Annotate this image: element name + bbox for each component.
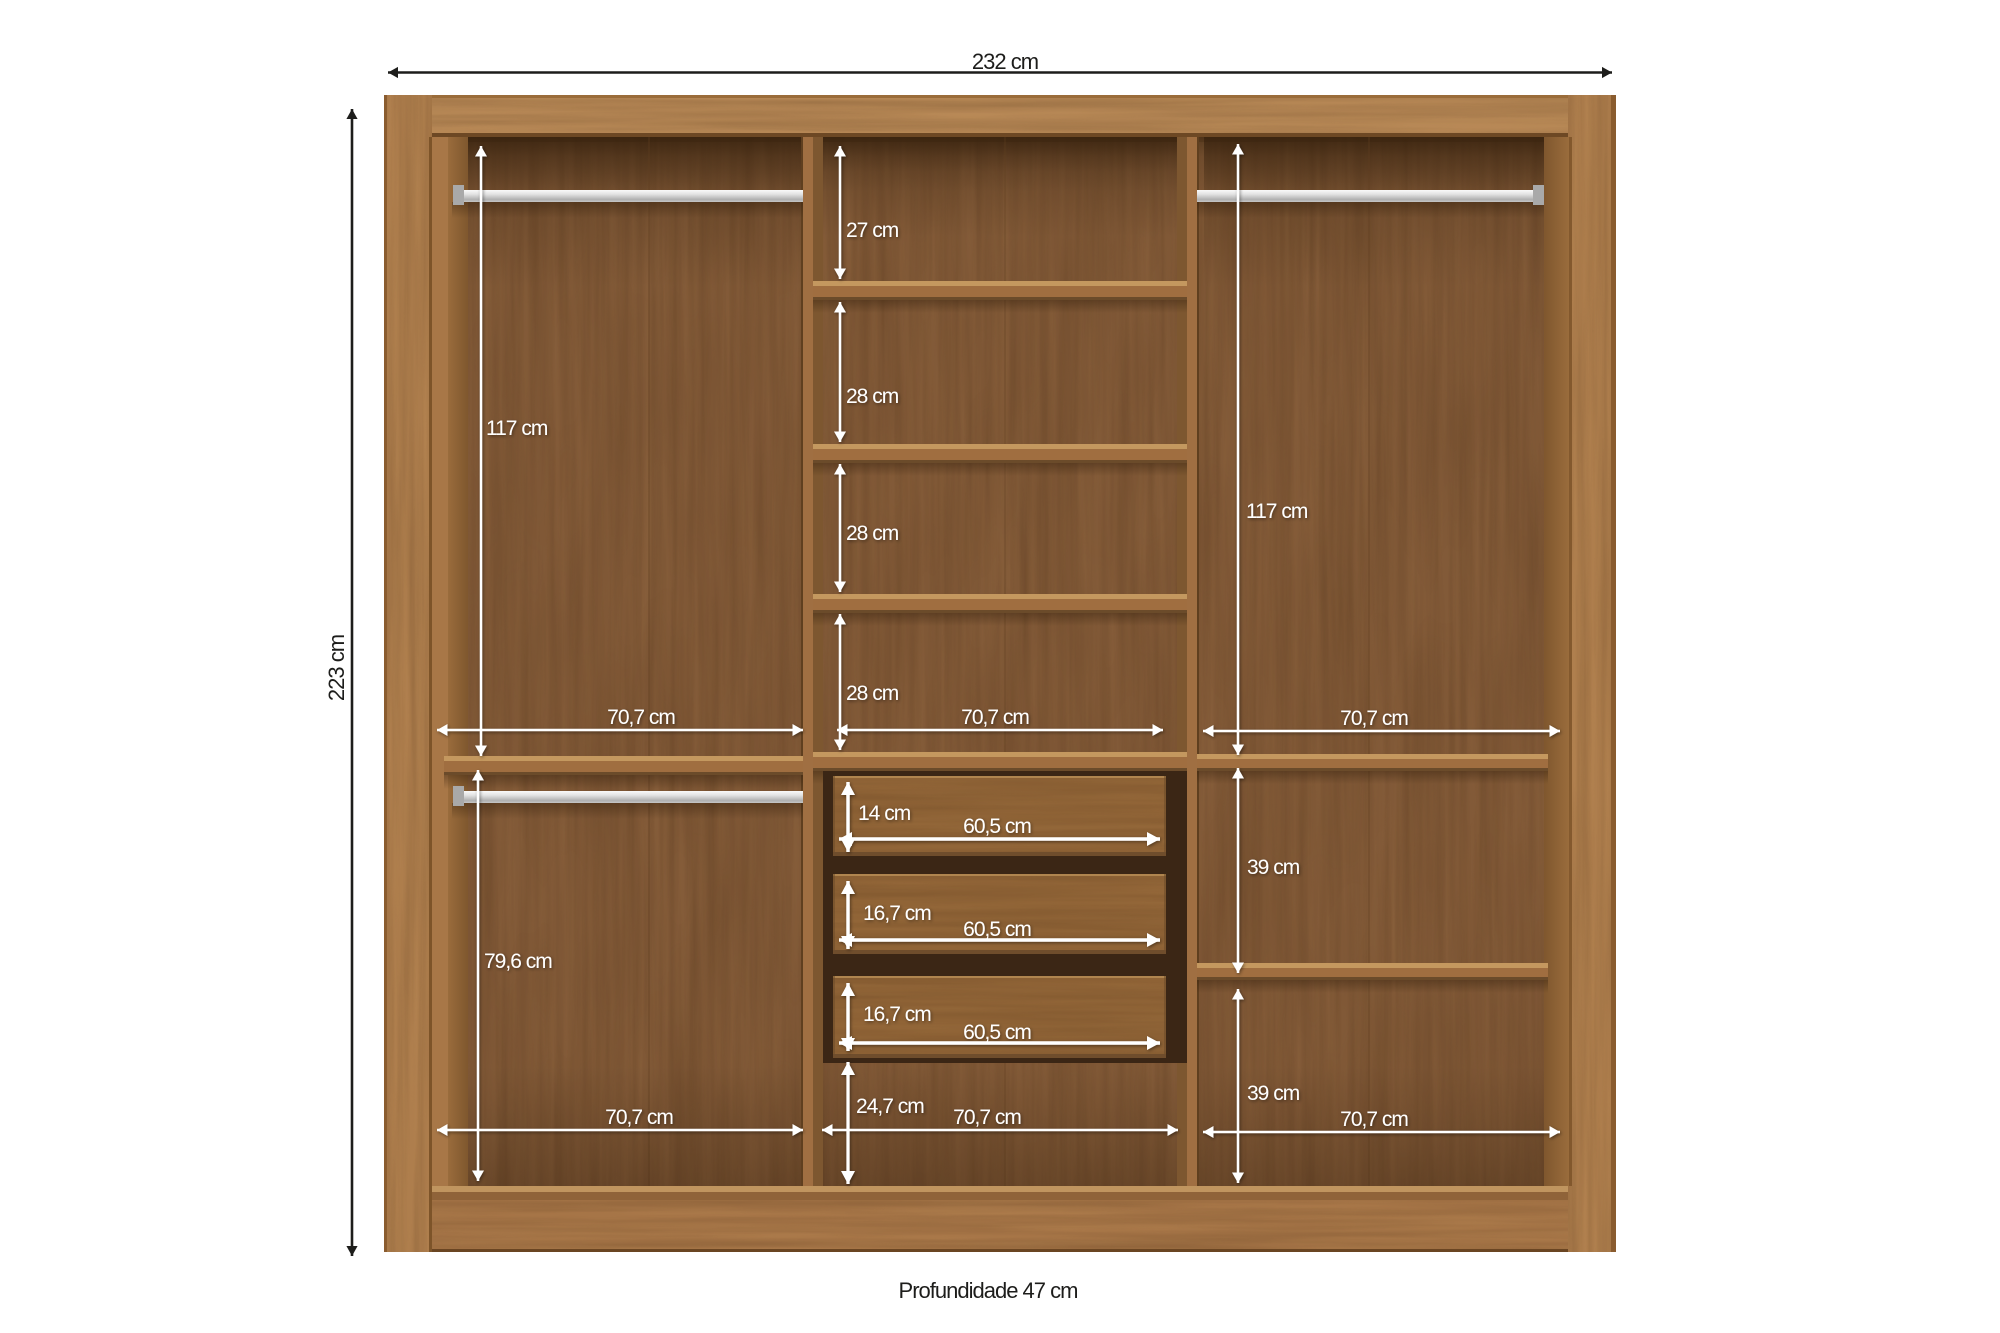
svg-text:16,7 cm: 16,7 cm: [863, 1003, 931, 1026]
svg-text:39 cm: 39 cm: [1247, 1082, 1300, 1105]
svg-text:27 cm: 27 cm: [846, 219, 899, 242]
svg-text:60,5 cm: 60,5 cm: [963, 815, 1031, 838]
svg-text:117 cm: 117 cm: [486, 417, 548, 440]
svg-text:16,7 cm: 16,7 cm: [863, 902, 931, 925]
svg-text:70,7 cm: 70,7 cm: [1340, 1108, 1408, 1131]
svg-text:28 cm: 28 cm: [846, 682, 899, 705]
svg-text:60,5 cm: 60,5 cm: [963, 1021, 1031, 1044]
svg-text:60,5 cm: 60,5 cm: [963, 918, 1031, 941]
svg-text:24,7 cm: 24,7 cm: [856, 1095, 924, 1118]
svg-text:79,6 cm: 79,6 cm: [484, 950, 552, 973]
svg-text:117 cm: 117 cm: [1246, 500, 1308, 523]
svg-text:Profundidade 47 cm: Profundidade 47 cm: [899, 1278, 1078, 1303]
svg-text:28 cm: 28 cm: [846, 385, 899, 408]
svg-text:39 cm: 39 cm: [1247, 856, 1300, 879]
svg-text:70,7 cm: 70,7 cm: [961, 706, 1029, 729]
svg-text:70,7 cm: 70,7 cm: [1340, 707, 1408, 730]
svg-text:223 cm: 223 cm: [324, 635, 349, 701]
svg-text:232 cm: 232 cm: [972, 49, 1038, 74]
svg-text:70,7 cm: 70,7 cm: [607, 706, 675, 729]
svg-text:14 cm: 14 cm: [858, 802, 911, 825]
svg-text:28 cm: 28 cm: [846, 522, 899, 545]
svg-text:70,7 cm: 70,7 cm: [953, 1106, 1021, 1129]
svg-text:70,7 cm: 70,7 cm: [605, 1106, 673, 1129]
